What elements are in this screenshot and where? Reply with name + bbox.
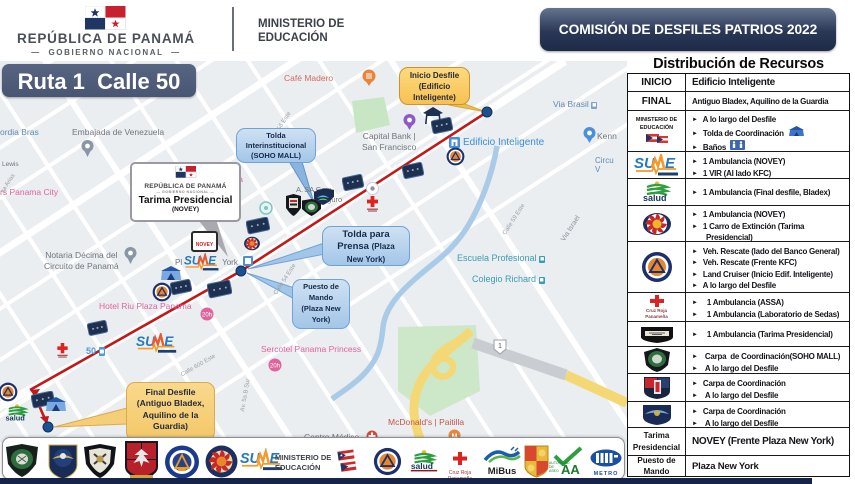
svg-text:20h: 20h (270, 364, 280, 370)
svg-text:salud: salud (5, 413, 25, 422)
svg-text:salud: salud (411, 461, 433, 471)
svg-text:salud: salud (643, 193, 667, 203)
svg-text:20h: 20h (202, 313, 212, 319)
svg-text:1: 1 (498, 343, 502, 350)
